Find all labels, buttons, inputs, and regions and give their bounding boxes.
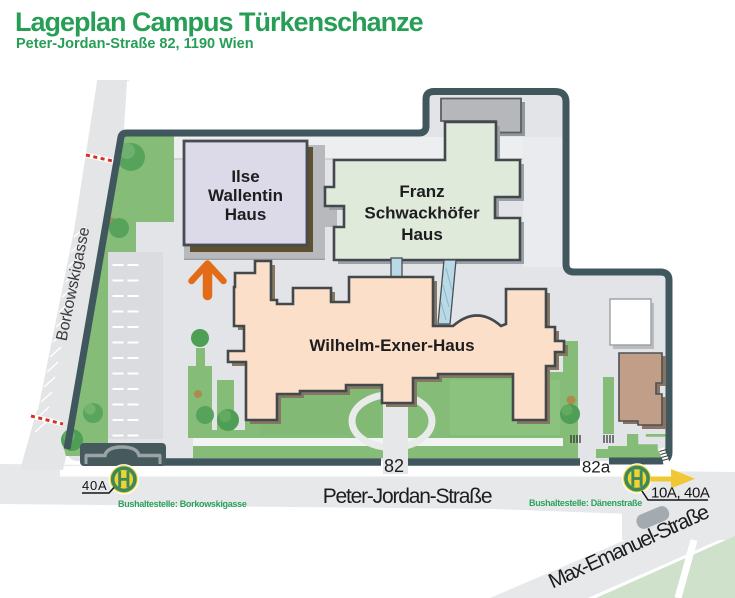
svg-text:Lageplan Campus Türkenschanze: Lageplan Campus Türkenschanze: [15, 7, 424, 37]
svg-text:Peter-Jordan-Straße 82, 1190 W: Peter-Jordan-Straße 82, 1190 Wien: [16, 36, 254, 52]
svg-text:Ilse: Ilse: [231, 167, 259, 186]
svg-text:40A: 40A: [82, 478, 108, 493]
svg-text:10A, 40A: 10A, 40A: [651, 485, 710, 502]
svg-text:Peter-Jordan-Straße: Peter-Jordan-Straße: [323, 485, 492, 508]
svg-text:Wallentin: Wallentin: [208, 186, 283, 205]
svg-text:Bushaltestelle: Borkowskigasse: Bushaltestelle: Borkowskigasse: [118, 499, 247, 509]
svg-text:82: 82: [384, 456, 404, 476]
svg-text:82a: 82a: [582, 458, 611, 477]
svg-text:Bushaltestelle: Dänenstraße: Bushaltestelle: Dänenstraße: [529, 498, 642, 508]
svg-text:Wilhelm-Exner-Haus: Wilhelm-Exner-Haus: [309, 336, 474, 355]
svg-text:Franz: Franz: [399, 182, 444, 201]
svg-text:Haus: Haus: [401, 225, 443, 244]
svg-text:Schwackhöfer: Schwackhöfer: [364, 204, 480, 223]
svg-text:Haus: Haus: [225, 205, 267, 224]
